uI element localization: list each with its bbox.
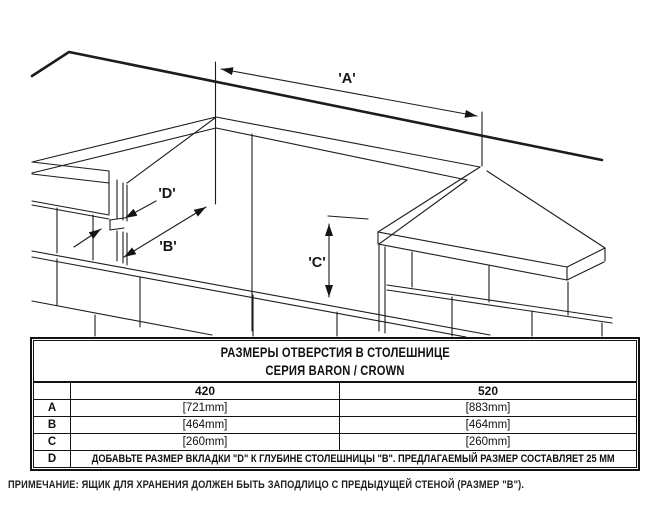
side-partition (110, 180, 127, 265)
row-value-420: [260mm] (71, 434, 340, 450)
table-title-line1: РАЗМЕРЫ ОТВЕРСТИЯ В СТОЛЕШНИЦЕ (220, 343, 449, 361)
table-row: A [721mm] [883mm] (34, 400, 636, 417)
dimensions-table: РАЗМЕРЫ ОТВЕРСТИЯ В СТОЛЕШНИЦЕ СЕРИЯ BAR… (30, 337, 640, 471)
table-title-line2: СЕРИЯ BARON / CROWN (265, 361, 404, 379)
row-d-note-text: ДОБАВЬТЕ РАЗМЕР ВКЛАДКИ "D" К ГЛУБИНЕ СТ… (92, 453, 615, 465)
table-row-d: D ДОБАВЬТЕ РАЗМЕР ВКЛАДКИ "D" К ГЛУБИНЕ … (34, 451, 636, 467)
table-row: C [260mm] [260mm] (34, 434, 636, 451)
table-title: РАЗМЕРЫ ОТВЕРСТИЯ В СТОЛЕШНИЦЕ СЕРИЯ BAR… (34, 341, 636, 383)
dimensions-table-inner: РАЗМЕРЫ ОТВЕРСТИЯ В СТОЛЕШНИЦЕ СЕРИЯ BAR… (33, 340, 637, 468)
technical-sheet: 'A' 'D' 'B' 'C' РАЗМЕРЫ ОТВЕРСТИЯ В СТОЛ… (0, 0, 665, 517)
dim-label-a: 'A' (338, 71, 355, 87)
row-value-520: [883mm] (340, 400, 636, 416)
row-label: D (34, 451, 71, 467)
header-420: 420 (71, 383, 340, 399)
dimension-d (125, 201, 156, 218)
dim-label-b: 'B' (159, 239, 176, 255)
header-520: 520 (340, 383, 636, 399)
leader-arrow (74, 229, 101, 247)
table-row: B [464mm] [464mm] (34, 417, 636, 434)
row-d-note: ДОБАВЬТЕ РАЗМЕР ВКЛАДКИ "D" К ГЛУБИНЕ СТ… (71, 451, 636, 467)
back-wall-edge (32, 52, 602, 160)
row-label: C (34, 434, 71, 450)
row-label: A (34, 400, 71, 416)
row-value-420: [721mm] (71, 400, 340, 416)
row-value-420: [464mm] (71, 417, 340, 433)
table-header-row: 420 520 (34, 383, 636, 400)
cutout-back-ledge (32, 62, 480, 331)
row-label: B (34, 417, 71, 433)
cutout-diagram: 'A' 'D' 'B' 'C' (0, 0, 665, 337)
header-blank-cell (34, 383, 71, 399)
row-value-520: [464mm] (340, 417, 636, 433)
dim-label-d: 'D' (158, 186, 175, 202)
footnote: ПРИМЕЧАНИЕ: ЯЩИК ДЛЯ ХРАНЕНИЯ ДОЛЖЕН БЫТ… (8, 479, 524, 491)
row-value-520: [260mm] (340, 434, 636, 450)
dimension-c (328, 216, 368, 297)
dim-label-c: 'C' (308, 255, 325, 271)
